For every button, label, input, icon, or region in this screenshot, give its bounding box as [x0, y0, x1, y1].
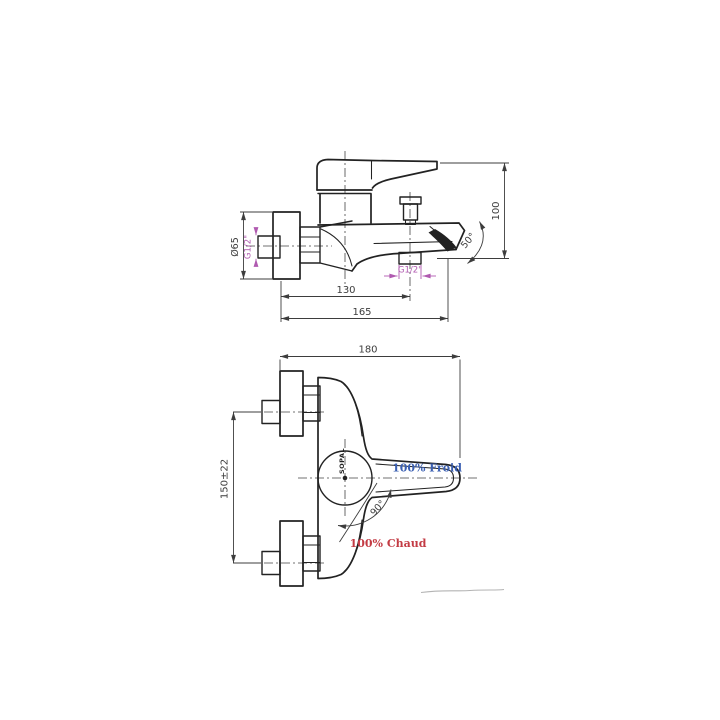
inlet-spacing-label: 150±22 [220, 459, 231, 499]
dimension-shower-outlet-thread: G1/2" [384, 265, 436, 279]
spout-angle-label: 50° [459, 231, 478, 251]
cold-position-label: 100% Froid [392, 462, 462, 475]
side-view: Ø65 G1/2" 100 50° G1/2" [230, 151, 509, 322]
dimension-width: 180 [280, 345, 460, 459]
connector-nut-side [300, 227, 320, 263]
mixer-body-spout [318, 223, 465, 271]
width-label: 180 [358, 345, 377, 356]
bath-mixer-technical-drawing: Ø65 G1/2" 100 50° G1/2" [0, 0, 720, 720]
cartridge-body [318, 194, 371, 224]
hot-position-label: 100% Chaud [350, 537, 427, 550]
handle-lever-side [317, 160, 437, 191]
wall-to-spout-label: 165 [352, 307, 371, 318]
height-label: 100 [491, 201, 502, 220]
wall-inlet-port [258, 236, 280, 258]
wall-flange-bottom [280, 521, 303, 586]
wall-to-shower-outlet-label: 130 [336, 285, 355, 296]
shower-outlet-thread-label: G1/2" [398, 266, 422, 276]
dimension-handle-rotation: 90° [338, 490, 391, 527]
flange-diameter-label: Ø65 [230, 237, 241, 257]
diverter-knob [400, 197, 421, 225]
wall-flange-top [280, 371, 303, 436]
faint-sketch-line [421, 590, 504, 593]
dimension-wall-inlet-thread: G1/2" [244, 228, 257, 266]
dimension-wall-to-spout: 165 [281, 259, 448, 322]
front-view: SOPAL 180 150±22 90° 100% Fro [220, 345, 505, 593]
wall-flange-side [273, 212, 300, 279]
spout-aerator [429, 229, 457, 252]
handle-rotation-label: 90° [368, 498, 387, 518]
dimension-inlet-spacing: 150±22 [220, 412, 262, 563]
connector-cone [320, 221, 352, 271]
wall-inlet-thread-label: G1/2" [244, 235, 254, 259]
technical-drawing-canvas: Ø65 G1/2" 100 50° G1/2" [0, 0, 720, 720]
dimension-wall-to-shower-outlet: 130 [281, 281, 410, 322]
